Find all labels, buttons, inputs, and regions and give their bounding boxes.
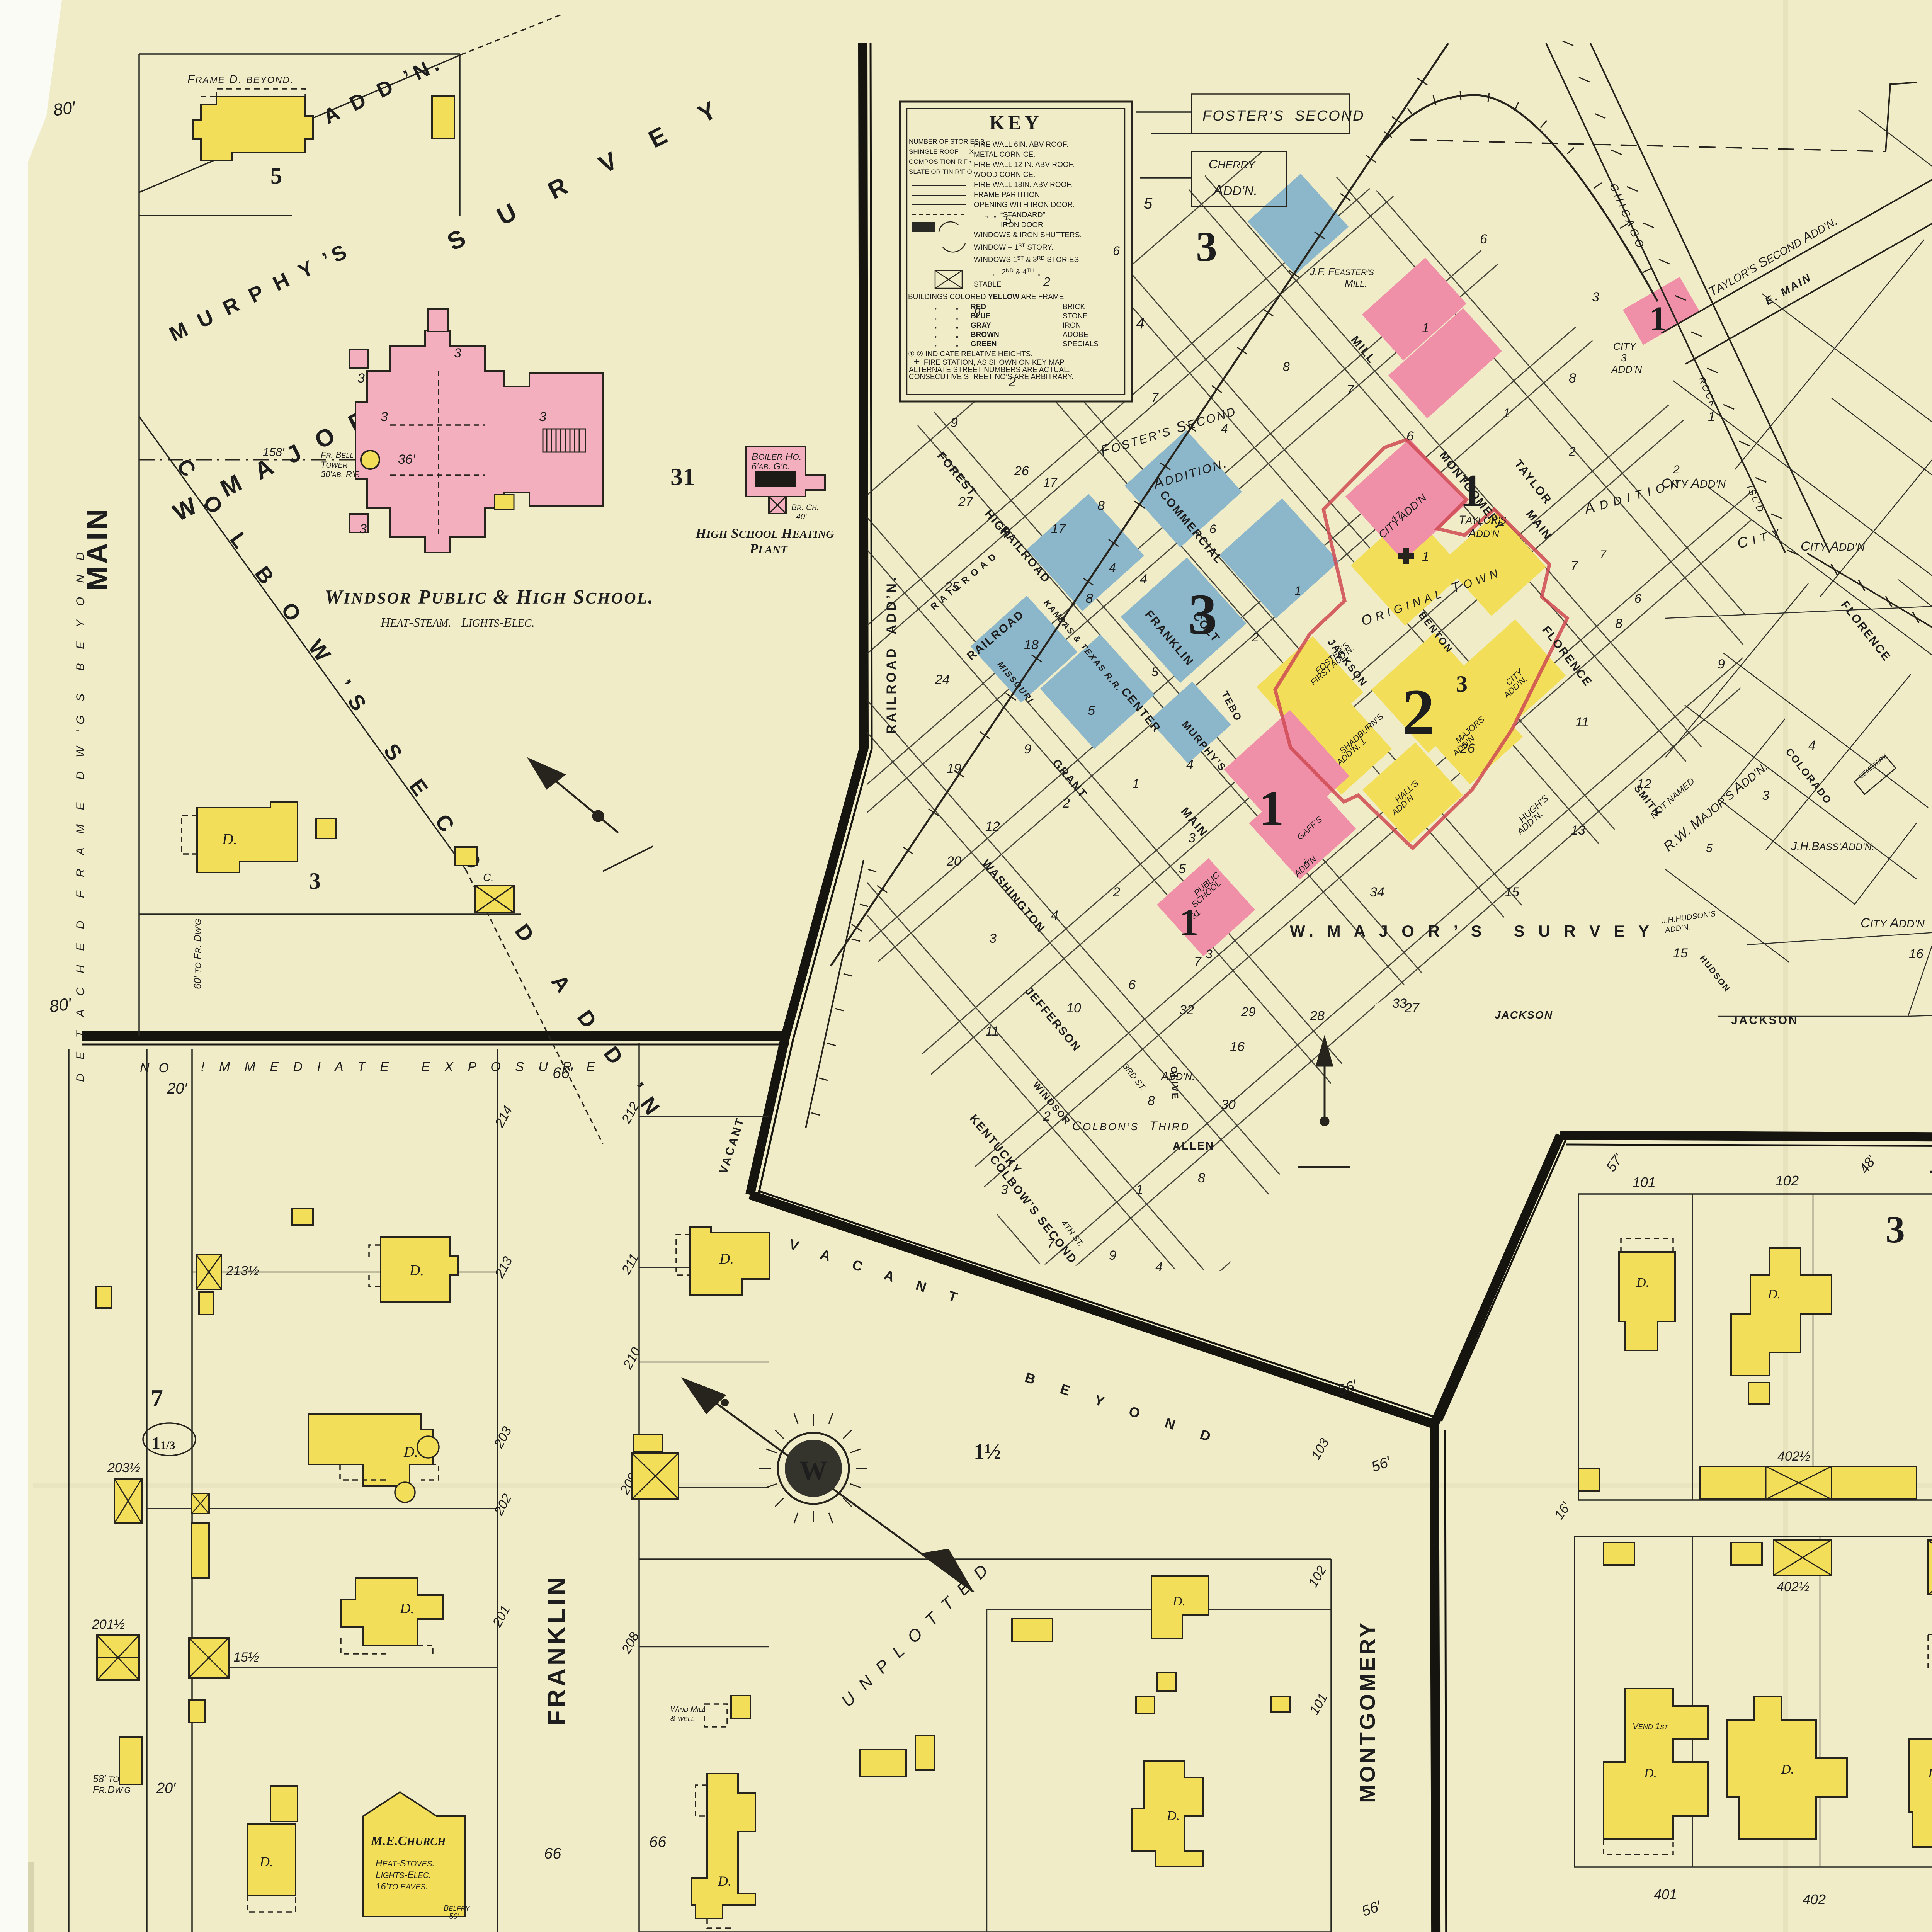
svg-text:11: 11	[1575, 715, 1589, 730]
svg-text:203½: 203½	[107, 1461, 140, 1475]
svg-text:5: 5	[270, 163, 282, 189]
svg-text:33: 33	[1392, 996, 1407, 1011]
svg-text:WINDOWS 1ST & 3RD STORIES: WINDOWS 1ST & 3RD STORIES	[974, 255, 1079, 264]
svg-text:D.: D.	[1172, 1594, 1185, 1609]
svg-text:4: 4	[1140, 572, 1147, 587]
svg-text:7: 7	[151, 1384, 163, 1412]
svg-text:COMPOSITION R’F •: COMPOSITION R’F •	[909, 158, 972, 165]
svg-text:3: 3	[309, 868, 321, 894]
svg-text:1: 1	[1136, 1182, 1143, 1197]
svg-text:BUILDINGS COLORED YELLOW ARE F: BUILDINGS COLORED YELLOW ARE FRAME	[908, 293, 1064, 301]
svg-text:FIRE WALL 18IN. ABV ROOF.: FIRE WALL 18IN. ABV ROOF.	[974, 181, 1072, 189]
svg-text:2: 2	[1112, 885, 1120, 900]
svg-text:402½: 402½	[1777, 1449, 1810, 1464]
svg-text:RAILROAD ADD’N.: RAILROAD ADD’N.	[884, 575, 899, 734]
svg-text:BR. CH.: BR. CH.	[791, 503, 819, 512]
svg-text:20′: 20′	[167, 1080, 187, 1097]
svg-text:29: 29	[1241, 1005, 1256, 1019]
svg-text:TAYLOR’S: TAYLOR’S	[1459, 514, 1507, 526]
svg-text:16: 16	[1230, 1039, 1245, 1054]
svg-text:HEAT-STEAM. LIGHTS-ELEC.: HEAT-STEAM. LIGHTS-ELEC.	[380, 616, 535, 630]
svg-text:TEBO: TEBO	[1930, 1166, 1932, 1190]
svg-text:6: 6	[1406, 429, 1414, 444]
svg-text:CITY: CITY	[1613, 340, 1637, 352]
svg-text:HEAT-STOVES.: HEAT-STOVES.	[376, 1858, 435, 1869]
svg-text:32: 32	[1179, 1003, 1194, 1017]
svg-text:2: 2	[1043, 1109, 1051, 1124]
svg-text:SPECIALS: SPECIALS	[1063, 340, 1099, 348]
svg-text:101: 101	[1633, 1174, 1656, 1190]
svg-text:MONTGOMERY: MONTGOMERY	[1355, 1621, 1379, 1803]
svg-text:6: 6	[1480, 232, 1487, 247]
svg-text:1: 1	[1132, 777, 1139, 791]
svg-text:5: 5	[1088, 703, 1095, 718]
svg-text:4: 4	[1051, 908, 1058, 923]
svg-text:201½: 201½	[92, 1617, 125, 1632]
svg-text:2: 2	[1008, 375, 1016, 389]
svg-text:3: 3	[381, 410, 388, 424]
svg-text:FRAME D. BEYOND.: FRAME D. BEYOND.	[187, 73, 294, 86]
svg-text:80′: 80′	[48, 994, 73, 1016]
svg-text:6: 6	[1113, 244, 1120, 258]
svg-text:TOWER: TOWER	[321, 460, 347, 469]
svg-text:3: 3	[1196, 223, 1217, 270]
svg-text:50′: 50′	[449, 1912, 459, 1921]
svg-text:4: 4	[1808, 738, 1816, 753]
svg-text:8: 8	[1097, 498, 1105, 513]
svg-text:FRANKLIN: FRANKLIN	[543, 1574, 570, 1725]
svg-text:18: 18	[1024, 638, 1039, 652]
svg-text:27: 27	[958, 495, 973, 509]
svg-text:WINDSOR PUBLIC & HIGH SCHOOL.: WINDSOR PUBLIC & HIGH SCHOOL.	[325, 586, 654, 608]
svg-text:3: 3	[1592, 290, 1599, 304]
svg-text:ADD’N.: ADD’N.	[1213, 182, 1258, 199]
svg-text:4: 4	[1109, 561, 1116, 575]
svg-text:7: 7	[1151, 391, 1159, 405]
svg-text:26: 26	[1014, 464, 1029, 478]
svg-text:LIGHTS-ELEC.: LIGHTS-ELEC.	[376, 1870, 431, 1880]
svg-text:19: 19	[947, 761, 961, 776]
svg-text:W. M A J O R ’ S S U R V E Y: W. M A J O R ’ S S U R V E Y	[1290, 922, 1654, 940]
svg-text:6: 6	[1209, 522, 1216, 536]
svg-text:„ „ GRAY: „ „ GRAY	[935, 321, 991, 330]
svg-text:9: 9	[1024, 742, 1031, 757]
svg-text:1: 1	[1422, 321, 1429, 335]
svg-text:1: 1	[1649, 300, 1667, 338]
svg-text:158′: 158′	[263, 446, 285, 459]
svg-text:FOSTER’S SECOND: FOSTER’S SECOND	[1202, 108, 1365, 124]
svg-text:ADD’N: ADD’N	[1611, 364, 1642, 375]
svg-text:5: 5	[1151, 665, 1158, 679]
svg-text:7: 7	[1047, 1236, 1055, 1251]
svg-text:6: 6	[1128, 978, 1136, 992]
svg-text:4: 4	[1221, 422, 1228, 435]
svg-text:3: 3	[1206, 947, 1213, 961]
svg-text:26: 26	[1460, 741, 1475, 756]
svg-text:D.: D.	[222, 830, 237, 848]
svg-text:1½: 1½	[974, 1440, 1001, 1464]
svg-text:IRON: IRON	[1063, 321, 1081, 330]
svg-text:3: 3	[539, 410, 546, 424]
svg-text:3: 3	[1762, 788, 1769, 803]
svg-text:1: 1	[1422, 549, 1429, 564]
svg-text:ALLEN: ALLEN	[1173, 1140, 1214, 1152]
svg-text:D.: D.	[259, 1854, 273, 1869]
svg-text:8: 8	[1569, 371, 1576, 386]
svg-text:FRAME PARTITION.: FRAME PARTITION.	[974, 191, 1042, 199]
svg-text:8: 8	[1283, 360, 1290, 374]
svg-text:30′AB. R′F.: 30′AB. R′F.	[321, 469, 360, 479]
svg-text:3: 3	[1001, 1182, 1008, 1197]
svg-text:13: 13	[1571, 823, 1585, 838]
svg-text:CITY ADD’N: CITY ADD’N	[1801, 539, 1865, 554]
svg-text:FR. BELL: FR. BELL	[321, 450, 354, 460]
svg-text:402½: 402½	[1777, 1580, 1810, 1594]
svg-text:STONE: STONE	[1063, 312, 1088, 320]
svg-text:8: 8	[1148, 1094, 1155, 1108]
svg-text:WINDOWS & IRON SHUTTERS.: WINDOWS & IRON SHUTTERS.	[974, 231, 1082, 239]
svg-text:5: 5	[1179, 862, 1186, 876]
svg-text:D E T A C H E D F R A M E D: D E T A C H E D F R A M E D W ’G S B E Y…	[74, 547, 87, 1082]
svg-text:17: 17	[1051, 522, 1066, 536]
svg-text:9: 9	[974, 306, 981, 320]
svg-text:34: 34	[1370, 885, 1384, 900]
svg-text:28: 28	[1310, 1009, 1325, 1023]
svg-text:3: 3	[989, 931, 997, 946]
svg-text:JACKSON: JACKSON	[1495, 1009, 1553, 1021]
svg-text:9: 9	[1718, 657, 1725, 672]
svg-text:3: 3	[1886, 1208, 1905, 1251]
svg-text:! M M E D I A T E E X P O S: ! M M E D I A T E E X P O S U R E	[201, 1060, 600, 1074]
svg-text:36′: 36′	[398, 452, 416, 467]
svg-text:7: 7	[1194, 954, 1202, 969]
svg-text:FIRE WALL 12 IN. ABV ROOF.: FIRE WALL 12 IN. ABV ROOF.	[974, 161, 1074, 169]
svg-text:17: 17	[1043, 476, 1058, 490]
svg-text:20: 20	[946, 854, 961, 869]
svg-text:8: 8	[1086, 591, 1093, 606]
svg-text:„ „ BROWN: „ „ BROWN	[935, 331, 999, 339]
svg-text:401: 401	[1654, 1886, 1677, 1902]
svg-text:213½: 213½	[226, 1264, 259, 1278]
svg-text:1: 1	[1503, 406, 1510, 420]
svg-text:CHERRY: CHERRY	[1209, 157, 1256, 171]
svg-text:WOOD CORNICE.: WOOD CORNICE.	[974, 171, 1035, 179]
svg-text:CONSECUTIVE STREET NO’S ARE AR: CONSECUTIVE STREET NO’S ARE ARBITRARY.	[909, 373, 1074, 381]
svg-text:METAL CORNICE.: METAL CORNICE.	[974, 151, 1035, 159]
svg-text:„ „ BLUE: „ „ BLUE	[935, 312, 991, 320]
svg-text:15½: 15½	[233, 1650, 259, 1665]
svg-text:66′: 66′	[553, 1065, 573, 1082]
svg-text:KEY: KEY	[989, 112, 1042, 134]
svg-text:FIRE WALL 6IN. ABV ROOF.: FIRE WALL 6IN. ABV ROOF.	[974, 141, 1068, 149]
svg-text:D.: D.	[1636, 1276, 1649, 1290]
svg-text:16′TO EAVES.: 16′TO EAVES.	[376, 1881, 428, 1892]
svg-text:① ② INDICATE RELATIVE HEIGHTS.: ① ② INDICATE RELATIVE HEIGHTS.	[908, 350, 1033, 358]
svg-text:D.: D.	[403, 1444, 418, 1460]
svg-text:2: 2	[1043, 275, 1050, 289]
svg-text:5: 5	[1706, 842, 1713, 855]
svg-text:12: 12	[1637, 777, 1651, 791]
svg-text:D.: D.	[718, 1873, 731, 1889]
svg-text:1: 1	[1708, 410, 1715, 424]
svg-text:BRICK: BRICK	[1063, 303, 1085, 311]
svg-text:40′: 40′	[796, 512, 807, 521]
svg-text:WINDOW – 1ST STORY.: WINDOW – 1ST STORY.	[974, 242, 1053, 252]
svg-text:30: 30	[1221, 1097, 1236, 1112]
svg-text:8: 8	[1198, 1171, 1205, 1185]
svg-text:7: 7	[1600, 548, 1607, 561]
svg-text:D.: D.	[1928, 1766, 1932, 1781]
svg-text:6: 6	[1634, 592, 1641, 605]
svg-text:16: 16	[1909, 947, 1923, 961]
svg-text:1: 1	[1294, 584, 1301, 598]
svg-text:7: 7	[1571, 558, 1578, 573]
svg-text:9: 9	[951, 415, 958, 430]
svg-text:2: 2	[1252, 630, 1259, 644]
svg-text:4: 4	[1186, 757, 1194, 772]
svg-text:2: 2	[1402, 676, 1435, 748]
svg-text:J.H.BASS’ADD’N.: J.H.BASS’ADD’N.	[1791, 840, 1875, 853]
svg-text:SHINGLE ROOF X: SHINGLE ROOF X	[909, 148, 974, 155]
svg-text:3: 3	[1456, 671, 1468, 697]
svg-text:3: 3	[359, 522, 367, 536]
svg-text:STABLE: STABLE	[974, 281, 1001, 289]
svg-text:D.: D.	[1767, 1287, 1781, 1301]
svg-text:15: 15	[1673, 946, 1688, 961]
svg-text:ADD’N: ADD’N	[1468, 527, 1500, 540]
svg-text:& WELL: & WELL	[670, 1714, 694, 1723]
svg-text:7: 7	[1347, 383, 1354, 397]
svg-text:„ „ “STANDARD”: „ „ “STANDARD”	[985, 211, 1045, 219]
svg-text:M.E.CHURCH: M.E.CHURCH	[371, 1834, 446, 1848]
svg-text:CITY ADD’N: CITY ADD’N	[1861, 916, 1925, 930]
svg-text:2: 2	[1568, 445, 1576, 459]
svg-text:6′AB. G′D.: 6′AB. G′D.	[752, 461, 790, 472]
svg-text:1: 1	[1259, 781, 1284, 836]
svg-text:SLATE OR TIN R’F O: SLATE OR TIN R’F O	[909, 168, 972, 175]
svg-text:D.: D.	[1644, 1766, 1657, 1781]
svg-text:BELFRY: BELFRY	[444, 1904, 470, 1913]
svg-text:NUMBER OF STORIES 3: NUMBER OF STORIES 3	[909, 138, 984, 145]
svg-text:102: 102	[1776, 1173, 1799, 1189]
svg-text:ADD’N.: ADD’N.	[1160, 1070, 1195, 1083]
svg-text:D.: D.	[1781, 1762, 1794, 1777]
svg-text:66: 66	[649, 1833, 667, 1850]
svg-text:402: 402	[1803, 1891, 1826, 1907]
svg-text:5: 5	[1144, 195, 1153, 212]
svg-text:31: 31	[670, 463, 695, 490]
svg-text:24: 24	[935, 672, 950, 687]
svg-text:15: 15	[1505, 885, 1519, 900]
svg-text:20′: 20′	[156, 1780, 176, 1796]
svg-text:WIND MILL: WIND MILL	[670, 1705, 706, 1714]
svg-text:3: 3	[454, 346, 461, 361]
svg-text:8: 8	[1615, 616, 1622, 631]
svg-text:D.: D.	[400, 1600, 414, 1617]
svg-text:W: W	[799, 1455, 827, 1486]
svg-text:„ „ GREEN: „ „ GREEN	[935, 340, 997, 348]
svg-text:10: 10	[1066, 1001, 1081, 1015]
svg-text:C.: C.	[483, 871, 494, 883]
svg-text:COLBON’S THIRD: COLBON’S THIRD	[1072, 1119, 1190, 1133]
svg-text:3: 3	[357, 371, 365, 386]
svg-text:3: 3	[1621, 352, 1627, 364]
svg-text:12: 12	[985, 819, 1000, 834]
svg-text:D.: D.	[1167, 1809, 1180, 1823]
svg-text:9: 9	[1109, 1248, 1116, 1263]
svg-text:D.: D.	[409, 1262, 424, 1279]
svg-text:2: 2	[1673, 463, 1680, 476]
svg-text:ADOBE: ADOBE	[1063, 331, 1088, 339]
svg-text:25: 25	[944, 580, 959, 594]
svg-text:5: 5	[1005, 213, 1012, 227]
svg-text:3: 3	[1188, 831, 1196, 845]
svg-text:D.: D.	[719, 1251, 734, 1267]
svg-text:4: 4	[1155, 1260, 1163, 1274]
svg-text:OPENING WITH IRON DOOR.: OPENING WITH IRON DOOR.	[974, 201, 1075, 209]
svg-text:80′: 80′	[52, 98, 77, 120]
svg-text:66: 66	[544, 1845, 561, 1862]
svg-text:2: 2	[1062, 796, 1070, 811]
svg-text:11: 11	[985, 1024, 999, 1039]
svg-text:4: 4	[1136, 315, 1145, 332]
